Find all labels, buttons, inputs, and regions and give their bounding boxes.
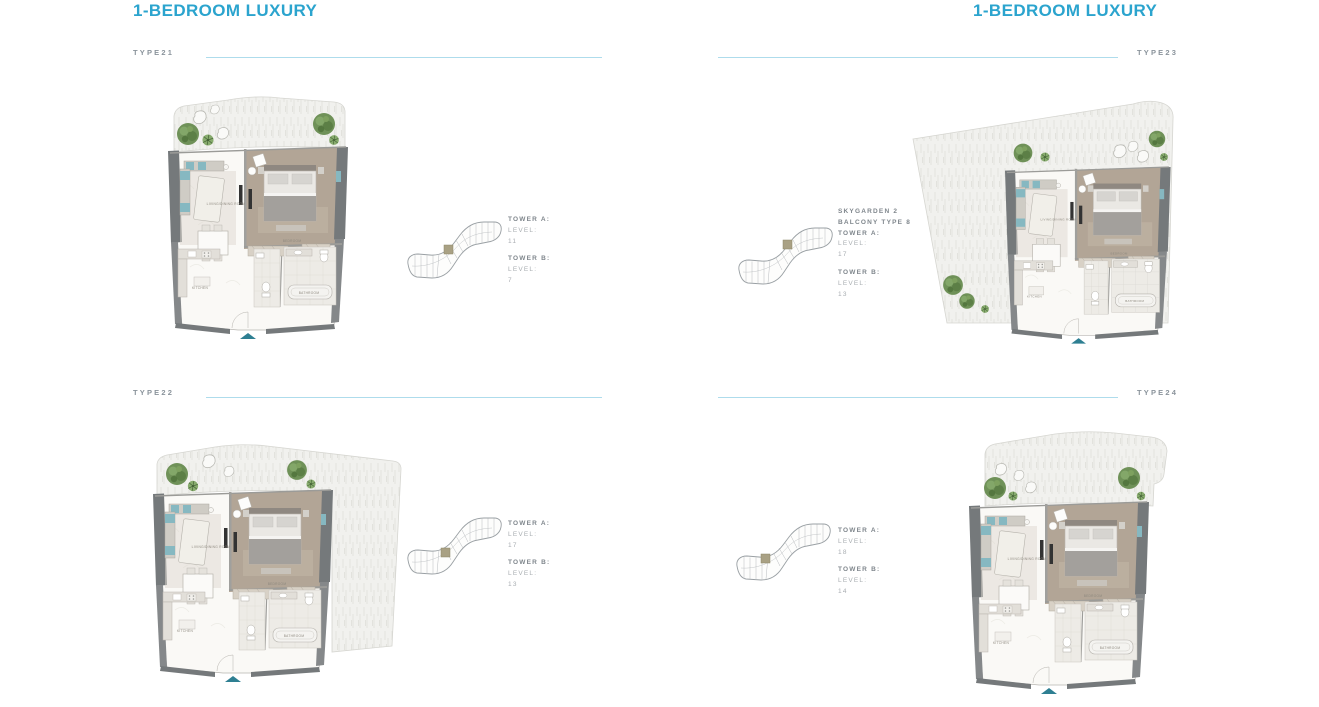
- tree-icon: [1149, 131, 1166, 148]
- type22-key-text: TOWER A: LEVEL: 17 TOWER B: LEVEL: 13: [508, 519, 550, 591]
- tree-icon: [1040, 152, 1049, 161]
- tree-icon: [1118, 467, 1140, 489]
- unit-highlight: [441, 548, 450, 557]
- type23-rule: [718, 57, 1118, 58]
- type23-label: TYPE23: [1137, 48, 1178, 57]
- unit-highlight: [444, 245, 453, 254]
- floorplan-type23: [905, 95, 1195, 345]
- type24-label: TYPE24: [1137, 388, 1178, 397]
- tree-icon: [981, 305, 989, 313]
- tree-icon: [959, 293, 974, 308]
- page-title-right: 1-BEDROOM LUXURY: [973, 1, 1157, 21]
- tree-icon: [202, 134, 213, 145]
- tree-icon: [1160, 153, 1168, 161]
- keyplan-type22: [404, 510, 504, 584]
- tree-icon: [943, 275, 963, 295]
- tree-icon: [306, 479, 315, 488]
- stone-icon: [1014, 470, 1024, 480]
- stone-icon: [1114, 145, 1127, 158]
- tree-icon: [1014, 144, 1033, 163]
- type21-label: TYPE21: [133, 48, 174, 57]
- stone-icon: [211, 105, 220, 114]
- tree-icon: [313, 113, 335, 135]
- tree-icon: [329, 135, 339, 145]
- stone-icon: [194, 111, 207, 124]
- stone-icon: [1026, 482, 1037, 493]
- brochure-page: LIVING/DINING ROOM BEDROOM KITCHEN BATHR…: [0, 0, 1319, 707]
- type24-rule: [718, 397, 1118, 398]
- tree-icon: [188, 481, 198, 491]
- floorplan-type21: [128, 92, 368, 342]
- type24-key-text: TOWER A: LEVEL: 18 TOWER B: LEVEL: 14: [838, 526, 880, 598]
- stone-icon: [1128, 141, 1138, 151]
- stone-icon: [217, 128, 228, 140]
- type21-key-text: TOWER A: LEVEL: 11 TOWER B: LEVEL: 7: [508, 215, 550, 287]
- stone-icon: [203, 455, 216, 468]
- tree-icon: [166, 463, 188, 485]
- type22-rule: [206, 397, 602, 398]
- type23-key-text: SKYGARDEN 2 BALCONY TYPE 8 TOWER A: LEVE…: [838, 207, 911, 300]
- unit-highlight: [761, 554, 770, 563]
- tree-icon: [1008, 491, 1017, 500]
- unit-highlight: [783, 240, 792, 249]
- tree-icon: [1137, 492, 1145, 500]
- keyplan-type24: [733, 516, 833, 590]
- page-title-left: 1-BEDROOM LUXURY: [133, 1, 317, 21]
- keyplan-type23: [735, 220, 835, 294]
- type22-label: TYPE22: [133, 388, 174, 397]
- tree-icon: [177, 123, 199, 145]
- type21-rule: [206, 57, 602, 58]
- tree-icon: [287, 460, 307, 480]
- floorplan-type22: [145, 438, 408, 696]
- stone-icon: [1137, 151, 1148, 163]
- stone-icon: [224, 466, 234, 476]
- stone-icon: [995, 464, 1006, 476]
- tree-icon: [984, 477, 1006, 499]
- keyplan-type21: [404, 214, 504, 288]
- floorplan-type24: [935, 424, 1185, 705]
